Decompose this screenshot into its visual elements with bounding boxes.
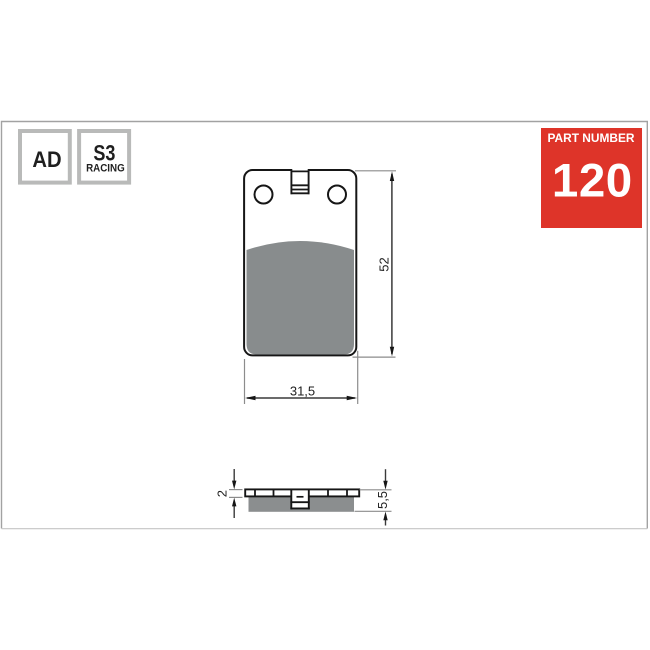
svg-text:31,5: 31,5 [290,384,315,399]
svg-text:PART NUMBER: PART NUMBER [548,131,635,145]
svg-text:AD: AD [32,148,61,172]
svg-text:120: 120 [552,155,633,208]
svg-text:5,5: 5,5 [375,491,390,509]
svg-text:2: 2 [215,490,230,497]
svg-text:RACING: RACING [86,162,125,175]
svg-text:52: 52 [376,257,391,271]
